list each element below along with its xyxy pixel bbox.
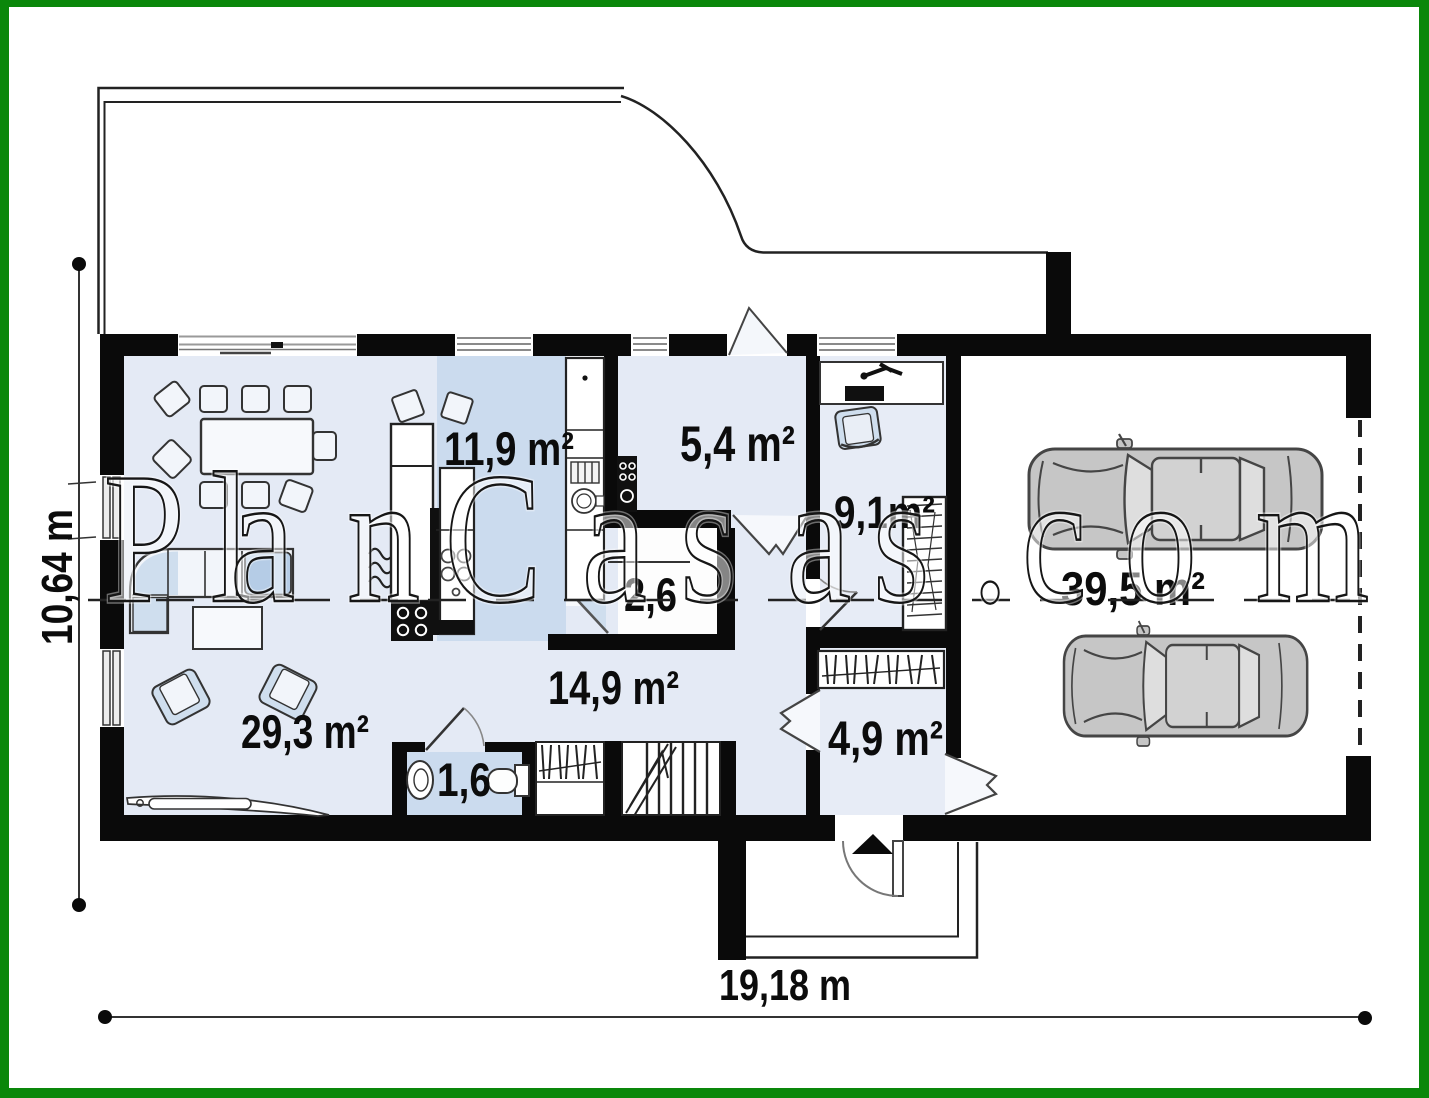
svg-text:10,64 m: 10,64 m xyxy=(33,509,82,645)
svg-text:4,9 m²: 4,9 m² xyxy=(828,713,943,766)
svg-text:19,18 m: 19,18 m xyxy=(719,961,851,1010)
svg-text:14,9 m²: 14,9 m² xyxy=(548,661,679,714)
svg-text:29,3 m²: 29,3 m² xyxy=(241,705,369,758)
svg-text:1,6: 1,6 xyxy=(437,753,491,806)
svg-text:PlanCasas.com: PlanCasas.com xyxy=(104,436,1370,642)
